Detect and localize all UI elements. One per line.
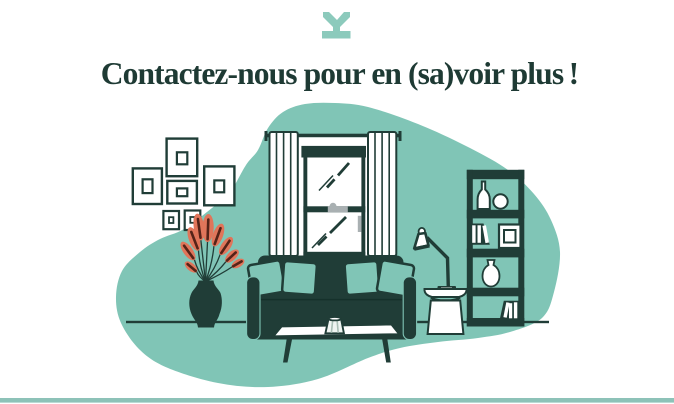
svg-text:Contactez-nous pour en (sa)voi: Contactez-nous pour en (sa)voir plus !	[101, 56, 578, 91]
